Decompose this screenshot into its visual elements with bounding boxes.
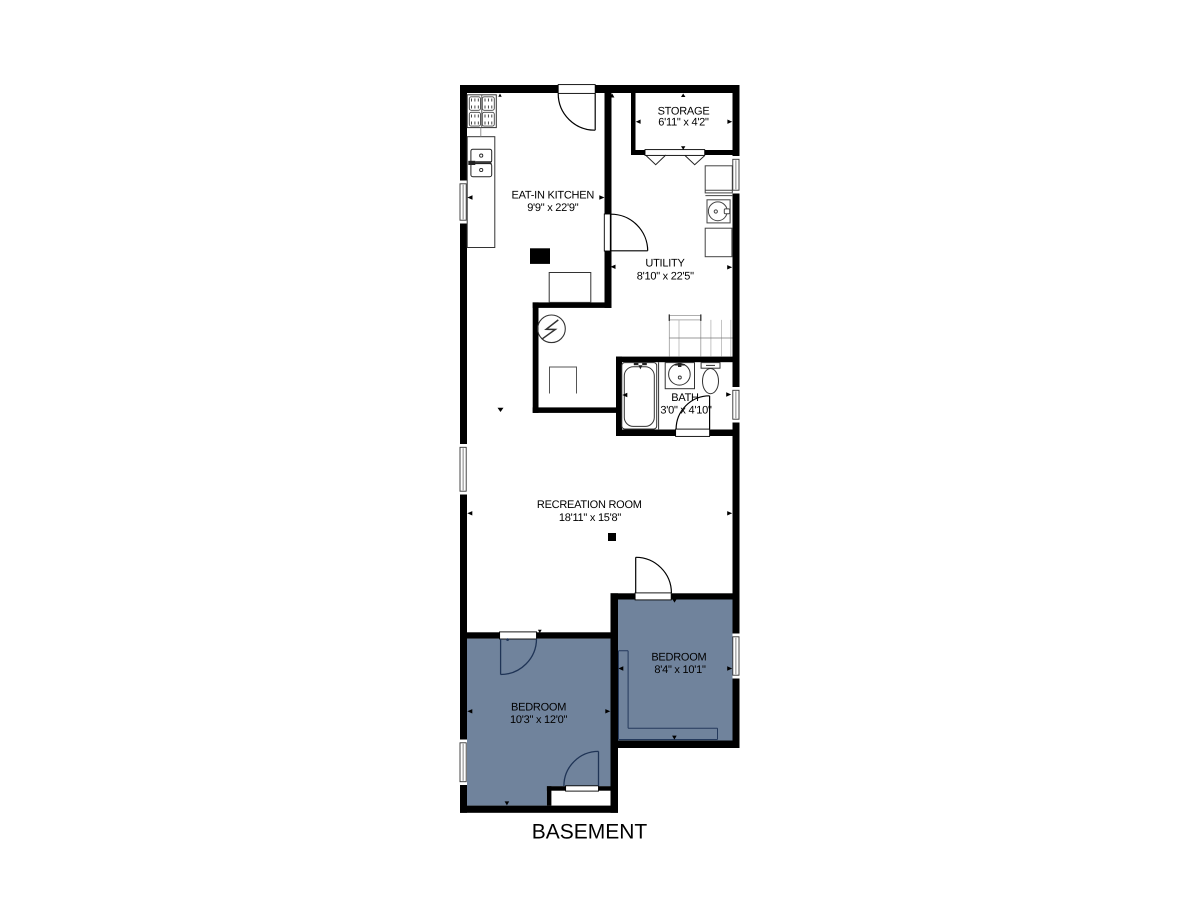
svg-text:3'0" x 4'10": 3'0" x 4'10" [660, 404, 712, 416]
svg-text:6'11" x 4'2": 6'11" x 4'2" [658, 117, 709, 129]
svg-text:18'11" x 15'8": 18'11" x 15'8" [559, 512, 621, 524]
svg-text:EAT-IN KITCHEN: EAT-IN KITCHEN [512, 190, 595, 202]
svg-text:10'3" x 12'0": 10'3" x 12'0" [510, 714, 567, 726]
svg-text:BASEMENT: BASEMENT [532, 821, 648, 844]
svg-text:RECREATION ROOM: RECREATION ROOM [537, 499, 642, 511]
svg-text:BATH: BATH [671, 392, 699, 404]
svg-text:9'9" x 22'9": 9'9" x 22'9" [527, 202, 579, 214]
svg-text:8'4" x 10'1": 8'4" x 10'1" [654, 664, 706, 676]
svg-text:8'10" x 22'5": 8'10" x 22'5" [637, 270, 694, 282]
svg-text:BEDROOM: BEDROOM [651, 652, 706, 664]
svg-text:BEDROOM: BEDROOM [511, 702, 566, 714]
svg-text:UTILITY: UTILITY [645, 258, 685, 270]
svg-text:STORAGE: STORAGE [658, 105, 710, 117]
